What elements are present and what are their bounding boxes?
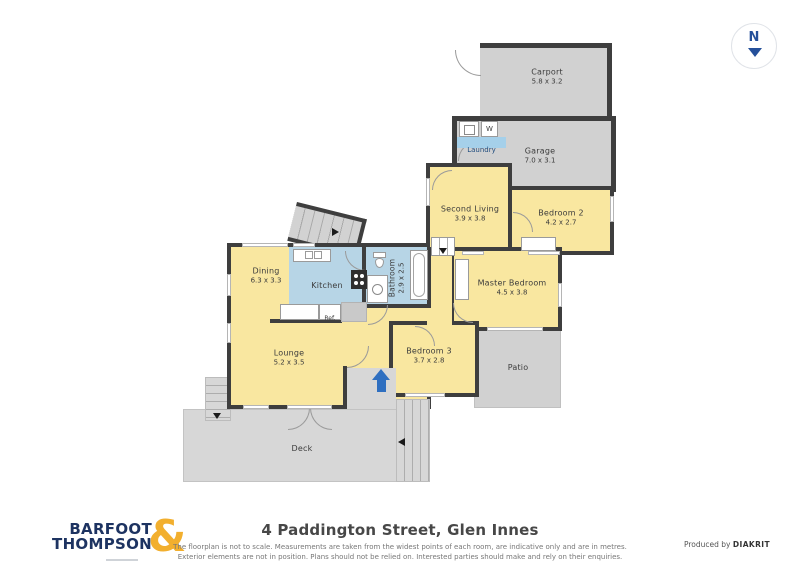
bathroom-vanity-icon bbox=[367, 275, 388, 303]
room-name: Garage bbox=[525, 146, 556, 156]
room-name: Kitchen bbox=[311, 281, 342, 291]
window bbox=[293, 243, 315, 247]
label-patio: Patio bbox=[508, 363, 529, 373]
window bbox=[227, 323, 231, 343]
laundry-label: Laundry bbox=[467, 146, 496, 154]
fridge-icon: Ref. bbox=[319, 304, 341, 320]
steps-left-arrow bbox=[213, 413, 221, 419]
producer-credit: Produced by DIAKRIT bbox=[684, 540, 770, 549]
room-name: Bedroom 2 bbox=[538, 208, 584, 218]
label-second-living: Second Living 3.9 x 3.8 bbox=[441, 204, 499, 223]
disclaimer-line2: Exterior elements are not in position. P… bbox=[0, 553, 800, 561]
label-deck: Deck bbox=[292, 444, 313, 454]
room-name: Master Bedroom bbox=[478, 278, 547, 288]
laundry-tub-icon bbox=[459, 121, 479, 137]
window bbox=[243, 405, 269, 409]
staircase-direction-arrow bbox=[332, 228, 339, 236]
label-bedroom3: Bedroom 3 3.7 x 2.8 bbox=[406, 346, 452, 365]
window bbox=[528, 251, 560, 255]
room-dims: 5.8 x 3.2 bbox=[531, 78, 563, 87]
compass-label: N bbox=[732, 31, 776, 44]
room-dims: 4.2 x 2.7 bbox=[538, 219, 584, 228]
room-name: Bedroom 3 bbox=[406, 346, 452, 356]
room-name: Deck bbox=[292, 444, 313, 454]
bathtub-icon bbox=[410, 250, 428, 300]
laundry-label-bar: Laundry bbox=[457, 137, 506, 148]
room-dims: 7.0 x 3.1 bbox=[525, 157, 556, 166]
produced-by-text: Produced by bbox=[684, 540, 731, 549]
wall-lounge-porch bbox=[343, 366, 347, 409]
master-wardrobe bbox=[455, 259, 469, 300]
label-kitchen: Kitchen bbox=[311, 281, 342, 291]
door-arc-carport bbox=[455, 50, 481, 76]
window bbox=[227, 274, 231, 296]
compass-arrow-icon bbox=[748, 48, 762, 57]
label-master-bedroom: Master Bedroom 4.5 x 3.8 bbox=[478, 278, 547, 297]
window bbox=[242, 243, 288, 247]
label-garage: Garage 7.0 x 3.1 bbox=[525, 146, 556, 165]
kitchen-sink-icon bbox=[314, 251, 322, 259]
internal-stairs-arrow bbox=[439, 248, 447, 254]
label-lounge: Lounge 5.2 x 3.5 bbox=[274, 348, 305, 367]
stove-icon bbox=[351, 270, 367, 289]
room-dims: 6.3 x 3.3 bbox=[251, 277, 282, 286]
entrance-arrow-icon bbox=[377, 379, 386, 392]
compass: N bbox=[731, 23, 777, 69]
room-name: Patio bbox=[508, 363, 529, 373]
room-dims: 5.2 x 3.5 bbox=[274, 359, 305, 368]
label-bathroom: Bathroom 2.9 x 2.5 bbox=[388, 259, 407, 297]
room-dims: 3.7 x 2.8 bbox=[406, 357, 452, 366]
steps-right-arrow bbox=[398, 438, 405, 446]
label-bedroom2: Bedroom 2 4.2 x 2.7 bbox=[538, 208, 584, 227]
bedroom2-closet bbox=[521, 237, 556, 251]
window bbox=[558, 283, 562, 307]
label-carport: Carport 5.8 x 3.2 bbox=[531, 67, 563, 86]
window bbox=[487, 327, 543, 331]
window bbox=[405, 393, 445, 397]
label-dining: Dining 6.3 x 3.3 bbox=[251, 266, 282, 285]
room-name: Dining bbox=[251, 266, 282, 276]
washer-label: W bbox=[486, 125, 493, 133]
room-name: Bathroom bbox=[388, 259, 398, 297]
washing-machine-icon: W bbox=[481, 121, 498, 137]
producer-name: DIAKRIT bbox=[733, 540, 770, 549]
room-dims: 3.9 x 3.8 bbox=[441, 215, 499, 224]
kitchen-sink-icon bbox=[305, 251, 313, 259]
entrance-arrow-icon bbox=[372, 369, 390, 380]
room-dims: 4.5 x 3.8 bbox=[478, 289, 547, 298]
door-opening-deck bbox=[287, 405, 332, 409]
disclaimer-line1: The floorplan is not to scale. Measureme… bbox=[0, 543, 800, 551]
room-name: Second Living bbox=[441, 204, 499, 214]
window bbox=[426, 178, 430, 206]
room-name: Lounge bbox=[274, 348, 305, 358]
pantry bbox=[341, 302, 367, 322]
window bbox=[610, 196, 614, 222]
kitchen-counter bbox=[280, 304, 319, 320]
room-dims: 2.9 x 2.5 bbox=[397, 259, 406, 297]
fridge-label: Ref. bbox=[324, 315, 335, 322]
door-opening-hall bbox=[462, 251, 484, 255]
address-title: 4 Paddington Street, Glen Innes bbox=[0, 521, 800, 539]
room-name: Carport bbox=[531, 67, 563, 77]
floorplan-page: W Laundry Ref. Carport 5.8 x 3.2 Garage bbox=[0, 0, 800, 584]
